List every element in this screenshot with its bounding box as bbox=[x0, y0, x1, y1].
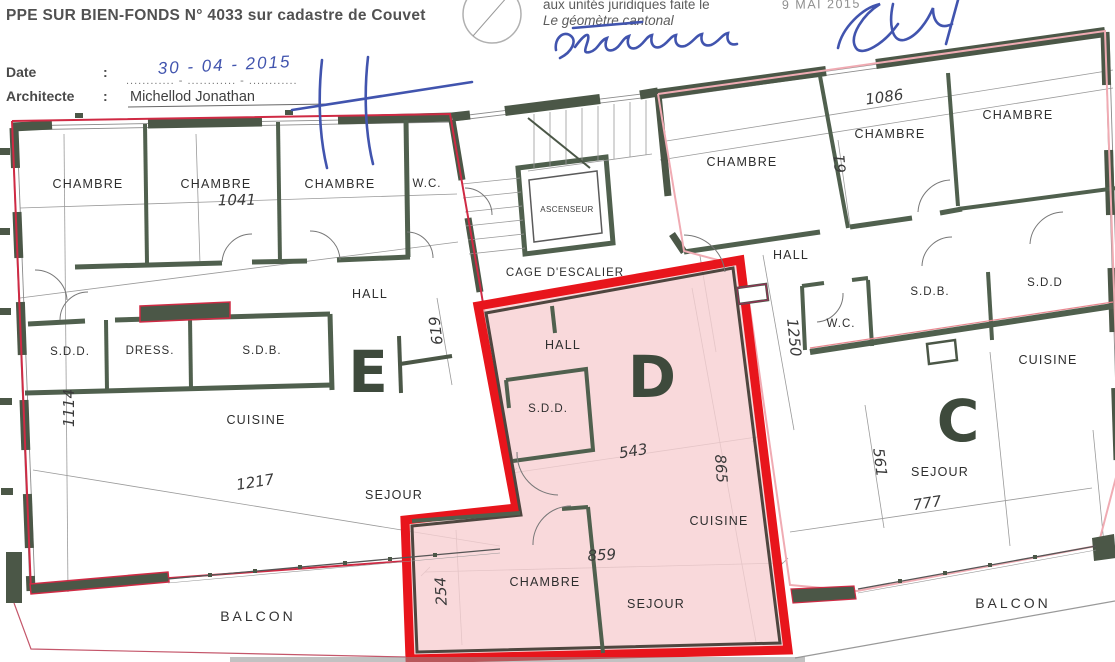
scan-artifact bbox=[230, 657, 805, 662]
room-label-e-chambre-1: CHAMBRE bbox=[53, 177, 124, 191]
room-label-c-sdb: S.D.B. bbox=[910, 286, 949, 298]
room-label-e-chambre-3: CHAMBRE bbox=[305, 177, 376, 191]
room-label-d-sdd: S.D.D. bbox=[528, 403, 568, 415]
unit-letter-c: C bbox=[937, 387, 980, 455]
scanned-floor-plan-page: CHAMBRE CHAMBRE CHAMBRE W.C. HALL S.D.D.… bbox=[0, 0, 1115, 662]
date-dotted-line: ............ - ............ - ..........… bbox=[126, 75, 298, 87]
architect-name: Michellod Jonathan bbox=[130, 89, 255, 105]
room-label-e-cuisine: CUISINE bbox=[226, 413, 285, 427]
stamp-circle bbox=[463, 0, 521, 43]
room-label-e-sdb: S.D.B. bbox=[242, 345, 281, 357]
date-label: Date bbox=[6, 64, 37, 80]
dim-e-sejour-w: 1217 bbox=[235, 470, 276, 494]
unit-d bbox=[405, 260, 788, 659]
dim-d-width: 859 bbox=[587, 545, 617, 564]
room-label-stairs: CAGE D'ESCALIER bbox=[506, 267, 624, 279]
room-label-d-sejour: SEJOUR bbox=[627, 597, 685, 611]
room-label-c-wc: W.C. bbox=[827, 318, 856, 330]
room-label-e-wc: W.C. bbox=[413, 178, 442, 190]
room-label-e-sdd: S.D.D. bbox=[50, 346, 90, 358]
dim-c-mid: 61 bbox=[830, 153, 850, 174]
dim-c-hall: 1250 bbox=[783, 318, 805, 358]
room-label-c-chambre-2: CHAMBRE bbox=[855, 127, 926, 141]
balcony-wall-left bbox=[30, 572, 169, 594]
certification-block: aux unités juridiques faite le 9 MAI 201… bbox=[463, 0, 861, 43]
room-label-d-hall: HALL bbox=[545, 338, 581, 352]
header: PPE SUR BIEN-FONDS N° 4033 sur cadastre … bbox=[6, 7, 426, 107]
room-label-c-chambre-3: CHAMBRE bbox=[983, 108, 1054, 122]
balcony-edge-left bbox=[14, 603, 406, 657]
room-label-e-hall: HALL bbox=[352, 287, 388, 301]
room-label-e-chambre-2: CHAMBRE bbox=[181, 177, 252, 191]
unit-letter-e: E bbox=[348, 338, 388, 406]
room-label-c-sdd: S.D.D bbox=[1027, 277, 1063, 289]
balcony-wall-right bbox=[791, 586, 856, 603]
red-outlined-wall-piece bbox=[140, 302, 230, 322]
architect-label: Architecte bbox=[6, 88, 75, 104]
dim-d-right: 865 bbox=[711, 454, 731, 484]
dim-c-sejour-h: 561 bbox=[869, 447, 890, 478]
room-label-d-chambre: CHAMBRE bbox=[510, 575, 581, 589]
balcony-corner-pier bbox=[6, 552, 22, 603]
dim-d-chambre-h: 254 bbox=[431, 576, 450, 606]
dim-e-left: 1114 bbox=[60, 389, 78, 427]
unit-letter-d: D bbox=[628, 343, 676, 411]
dim-e-stair: 619 bbox=[425, 315, 446, 346]
floor-plan-svg: CHAMBRE CHAMBRE CHAMBRE W.C. HALL S.D.D.… bbox=[0, 0, 1115, 662]
page-title: PPE SUR BIEN-FONDS N° 4033 sur cadastre … bbox=[6, 7, 426, 24]
wall-niche-c bbox=[927, 340, 957, 364]
balcony-pier-right bbox=[1092, 534, 1115, 561]
room-label-e-dress: DRESS. bbox=[126, 345, 175, 357]
balcony-edge-right bbox=[795, 601, 1115, 658]
stamp-date: 9 MAI 2015 bbox=[782, 0, 861, 12]
dim-c-sejour-w: 777 bbox=[912, 492, 944, 514]
stamp-circle-mark bbox=[473, 0, 508, 36]
room-label-c-chambre-1: CHAMBRE bbox=[707, 155, 778, 169]
dim-c-top: 1086 bbox=[864, 85, 904, 108]
room-label-c-hall: HALL bbox=[773, 248, 809, 262]
room-label-d-cuisine: CUISINE bbox=[689, 514, 748, 528]
room-label-elevator: ASCENSEUR bbox=[540, 205, 593, 214]
room-label-c-sejour: SEJOUR bbox=[911, 465, 969, 479]
architect-check-marks bbox=[292, 57, 472, 168]
date-colon: : bbox=[103, 64, 108, 80]
dim-e-top: 1041 bbox=[218, 191, 256, 210]
room-label-balcony-right: BALCON bbox=[975, 595, 1051, 611]
room-label-e-sejour: SEJOUR bbox=[365, 488, 423, 502]
room-label-c-cuisine: CUISINE bbox=[1018, 353, 1077, 367]
stairwell bbox=[462, 100, 652, 254]
architect-colon: : bbox=[103, 88, 108, 104]
room-label-balcony-left: BALCON bbox=[220, 608, 296, 624]
certification-line1: aux unités juridiques faite le bbox=[543, 0, 710, 12]
